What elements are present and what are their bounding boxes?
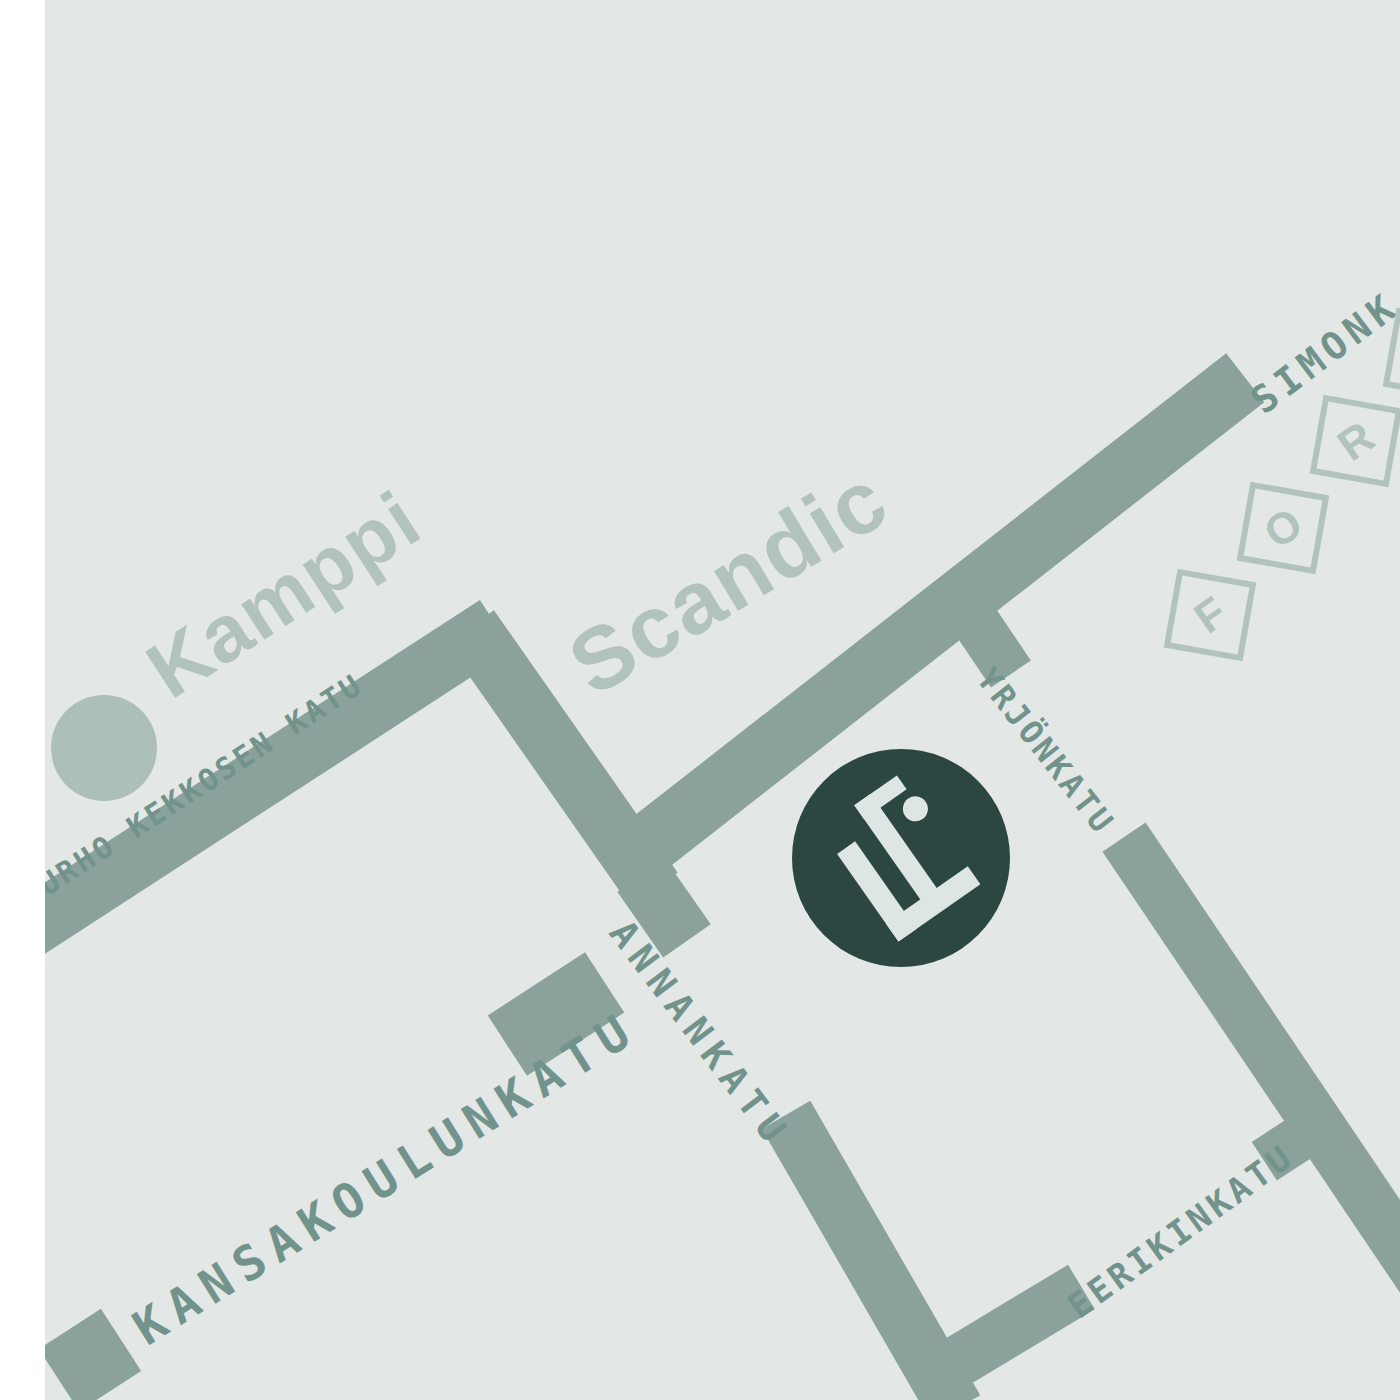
forum-letter: R xyxy=(1330,414,1381,468)
kamppi-station-dot-icon xyxy=(51,695,157,801)
road-yrjonkatu-main xyxy=(1102,823,1400,1300)
lf-monogram-icon xyxy=(806,760,995,955)
road-eerikinkatu-west xyxy=(935,1265,1095,1389)
forum-letter: F xyxy=(1186,589,1233,640)
forum-letter-tile: R xyxy=(1310,395,1400,488)
forum-letter-tile: O xyxy=(1237,482,1330,575)
page-margin xyxy=(0,0,45,1400)
lf-logo xyxy=(792,749,1010,967)
road-kansakoulunkatu-start-block xyxy=(39,1309,141,1400)
street-label-kansakoulunkatu: KANSAKOULUNKATU xyxy=(125,1002,645,1352)
map-canvas: SIMONK URHO KEKKOSEN KATU KANSAKOULUNKAT… xyxy=(0,0,1400,1400)
forum-letter: O xyxy=(1256,500,1309,556)
forum-letter-tile: F xyxy=(1164,569,1257,662)
street-label-eerikinkatu: EERIKINKATU xyxy=(1062,1138,1300,1324)
